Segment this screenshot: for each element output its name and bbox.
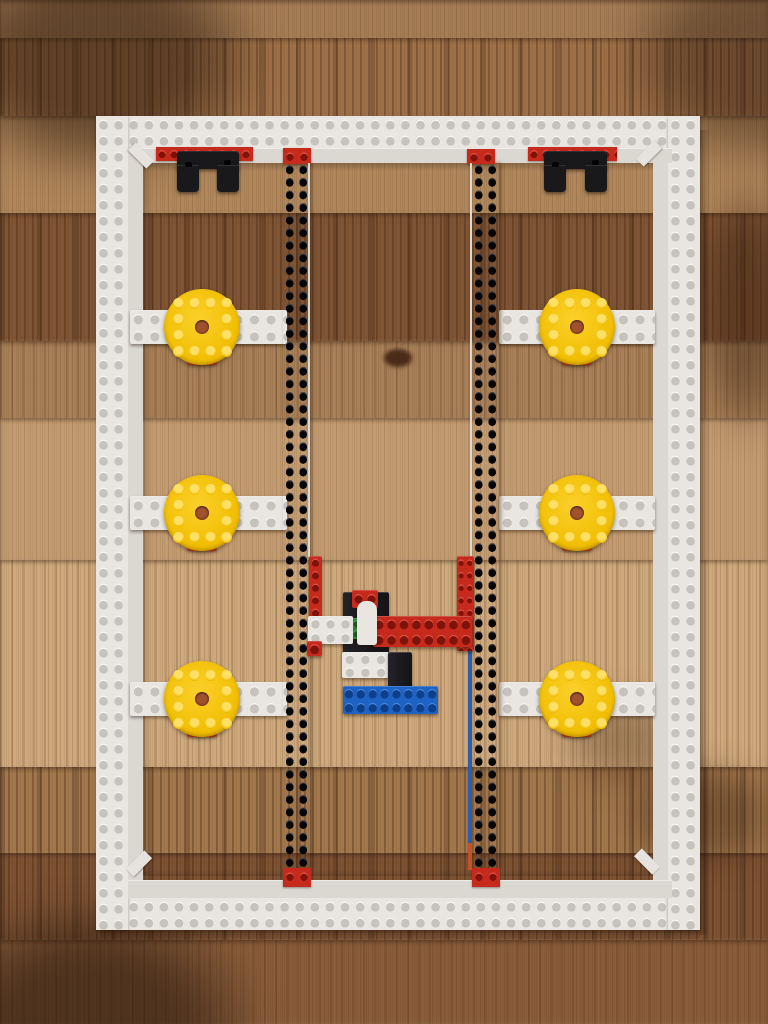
wood-plank	[0, 418, 768, 560]
disc-stud	[548, 500, 559, 511]
disc-stud	[221, 718, 232, 729]
clip-hole	[552, 162, 559, 167]
disc-stud	[564, 484, 575, 495]
frame-outer-shadow	[100, 930, 700, 940]
beams-layer	[0, 0, 768, 1024]
left-string	[308, 163, 310, 557]
disc-stud	[221, 346, 232, 357]
disc-stud	[564, 298, 575, 309]
disc-red-mount	[562, 525, 592, 551]
disc-stud	[173, 718, 184, 729]
right-lower-cord-orange	[468, 843, 472, 870]
disc-stud	[564, 346, 575, 357]
right-string	[470, 163, 472, 557]
disc-stud	[548, 516, 559, 527]
left-rail-row2	[130, 496, 287, 530]
disc-red-mount	[187, 711, 217, 737]
wood-knot	[384, 349, 412, 367]
frame-left-lip	[128, 148, 143, 880]
disc-stud	[548, 702, 559, 713]
disc-stud	[548, 670, 559, 681]
disc-axle-hole	[570, 320, 584, 334]
clip-hole	[224, 160, 231, 165]
frame-right-band	[668, 116, 700, 930]
wood-plank	[0, 767, 768, 853]
carriage-red-top-brick	[352, 590, 378, 608]
frame-corner-brace	[636, 140, 662, 166]
frame-bottom-band	[96, 898, 700, 930]
disc-stud	[548, 718, 559, 729]
right-beam-top-red-connector	[467, 149, 495, 164]
clip-left-leg	[177, 165, 199, 192]
carriage-blue-brick	[343, 686, 438, 714]
clip-left-leg	[544, 165, 566, 192]
disc-stud	[205, 484, 216, 495]
frame-outer-shadow	[700, 130, 710, 935]
left-rail-row3	[130, 682, 287, 716]
disc-stud	[205, 670, 216, 681]
yellow-disc-right-3	[539, 661, 615, 737]
yellow-disc-right-2	[539, 475, 615, 551]
disc-stud	[596, 346, 607, 357]
carriage-white-latch	[357, 601, 377, 645]
disc-stud	[564, 532, 575, 543]
disc-stud	[548, 346, 559, 357]
carriage-red-stud-brick	[307, 641, 322, 656]
frame-inner-shadow	[143, 163, 653, 171]
right-rail-row2	[499, 496, 655, 530]
disc-stud	[189, 298, 200, 309]
carriage-layer	[0, 0, 768, 1024]
disc-red-mount	[562, 711, 592, 737]
carriage-white-brick-left	[308, 616, 353, 644]
disc-stud	[221, 500, 232, 511]
disc-stud	[205, 718, 216, 729]
disc-stud	[596, 702, 607, 713]
disc-stud	[596, 484, 607, 495]
disc-stud	[596, 718, 607, 729]
carriage-left-red-post	[309, 556, 322, 620]
left-hanging-clip-red-plate	[156, 147, 253, 161]
disc-stud	[564, 718, 575, 729]
disc-stud	[580, 718, 591, 729]
right-rail-row1	[499, 310, 655, 344]
left-hanging-clip	[177, 151, 239, 192]
lego-frame-layer	[0, 0, 768, 1024]
clip-top-bar	[544, 151, 607, 169]
frame-corner-brace	[126, 850, 152, 876]
frame-inner-shadow	[143, 870, 653, 876]
disc-stud	[221, 702, 232, 713]
disc-stud	[205, 532, 216, 543]
disc-stud	[596, 686, 607, 697]
disc-stud	[189, 718, 200, 729]
disc-stud	[596, 516, 607, 527]
right-vertical-black-beam	[472, 163, 499, 869]
photo-lego-contraption	[0, 0, 768, 1024]
clip-top-bar	[177, 151, 239, 169]
wood-shading	[700, 180, 768, 440]
disc-axle-hole	[195, 692, 209, 706]
disc-stud	[173, 484, 184, 495]
clip-right-leg	[217, 165, 239, 192]
left-vertical-black-beam	[283, 163, 310, 869]
wood-table-layer	[0, 0, 768, 1024]
disc-stud	[173, 298, 184, 309]
carriage-black-arm	[388, 652, 412, 689]
disc-stud	[548, 330, 559, 341]
yellow-disc-left-3	[164, 661, 240, 737]
disc-stud	[173, 314, 184, 325]
disc-stud	[173, 330, 184, 341]
carriage-white-brick-lower	[342, 652, 389, 678]
carriage-right-red-post	[457, 556, 474, 651]
disc-stud	[173, 516, 184, 527]
frame-top-lip	[128, 148, 672, 163]
right-rail-row3	[499, 682, 655, 716]
right-lower-cord-blue	[468, 650, 472, 843]
disc-red-mount	[187, 525, 217, 551]
yellow-disc-left-1	[164, 289, 240, 365]
disc-stud	[205, 298, 216, 309]
wood-shading	[0, 900, 260, 1024]
left-beam-bottom-red-connector	[283, 868, 311, 887]
disc-stud	[548, 314, 559, 325]
disc-stud	[580, 532, 591, 543]
disc-stud	[548, 686, 559, 697]
wood-plank	[0, 341, 768, 418]
carriage-green-clip	[351, 618, 362, 639]
disc-stud	[221, 314, 232, 325]
disc-axle-hole	[195, 506, 209, 520]
wood-plank	[0, 116, 768, 213]
frame-corner-brace	[634, 848, 660, 874]
disc-stud	[580, 298, 591, 309]
disc-stud	[173, 686, 184, 697]
frame-corner-brace	[128, 142, 154, 168]
wood-plank	[0, 853, 768, 940]
left-rail-row1	[130, 310, 287, 344]
disc-stud	[221, 516, 232, 527]
disc-stud	[221, 670, 232, 681]
clip-hole	[592, 160, 599, 165]
disc-stud	[173, 500, 184, 511]
pulley-discs-layer	[0, 0, 768, 1024]
disc-stud	[173, 670, 184, 681]
rails-layer	[0, 0, 768, 1024]
disc-stud	[205, 346, 216, 357]
carriage-red-beam	[373, 616, 472, 647]
wood-shading	[560, 690, 690, 790]
wood-shading	[620, 760, 768, 870]
disc-axle-hole	[570, 692, 584, 706]
right-beam-bottom-red-connector	[472, 868, 500, 887]
wood-plank	[0, 38, 768, 116]
disc-stud	[189, 532, 200, 543]
frame-left-band	[96, 116, 128, 930]
left-beam-top-red-connector	[283, 148, 311, 164]
clip-right-leg	[585, 165, 607, 192]
disc-axle-hole	[570, 506, 584, 520]
disc-stud	[221, 532, 232, 543]
disc-stud	[580, 346, 591, 357]
wood-plank	[0, 0, 768, 38]
disc-stud	[221, 330, 232, 341]
disc-stud	[548, 298, 559, 309]
wood-plank	[0, 213, 768, 341]
disc-stud	[173, 532, 184, 543]
carriage-black-plate	[343, 592, 389, 653]
disc-red-mount	[187, 339, 217, 365]
disc-stud	[173, 346, 184, 357]
wood-shading	[620, 0, 768, 170]
disc-stud	[580, 670, 591, 681]
disc-red-mount	[562, 339, 592, 365]
disc-stud	[564, 670, 575, 681]
frame-bottom-lip	[128, 880, 672, 898]
right-hanging-clip-red-plate	[528, 147, 617, 161]
disc-stud	[221, 484, 232, 495]
disc-stud	[189, 484, 200, 495]
yellow-disc-left-2	[164, 475, 240, 551]
disc-stud	[548, 484, 559, 495]
wood-plank	[0, 560, 768, 767]
disc-stud	[596, 314, 607, 325]
yellow-disc-right-1	[539, 289, 615, 365]
disc-axle-hole	[195, 320, 209, 334]
right-hanging-clip	[544, 151, 607, 192]
frame-inner-shadow	[143, 163, 151, 875]
disc-stud	[596, 298, 607, 309]
disc-stud	[596, 532, 607, 543]
disc-stud	[596, 500, 607, 511]
disc-stud	[189, 670, 200, 681]
disc-stud	[548, 532, 559, 543]
disc-stud	[580, 484, 591, 495]
disc-stud	[173, 702, 184, 713]
disc-stud	[189, 346, 200, 357]
strings-layer	[0, 0, 768, 1024]
wood-grain-overlay	[0, 0, 768, 1024]
frame-right-lip	[653, 148, 668, 880]
disc-stud	[596, 330, 607, 341]
disc-stud	[221, 298, 232, 309]
wood-plank	[0, 940, 768, 1024]
disc-stud	[221, 686, 232, 697]
frame-top-band	[96, 116, 700, 148]
wood-shading	[0, 0, 260, 180]
disc-stud	[596, 670, 607, 681]
clip-hole	[185, 162, 192, 167]
